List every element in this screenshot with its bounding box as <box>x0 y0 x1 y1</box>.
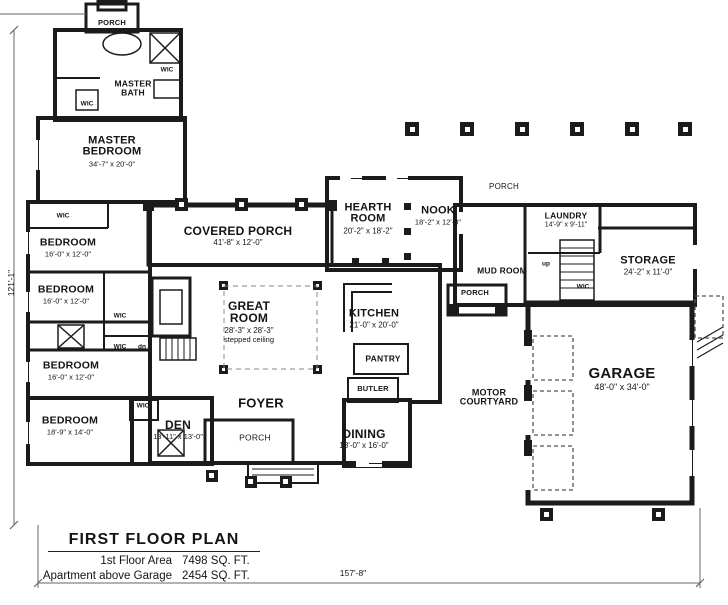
overall-width-dimension: 157'-8" <box>340 568 366 578</box>
room-label-bedroom-2: BEDROOM 16'-0" x 12'-0" <box>38 285 94 306</box>
room-label-wic-a: WIC <box>114 313 127 320</box>
room-label-den: DEN 13'-11" x 13'-0" <box>153 419 203 441</box>
area-label: Apartment above Garage <box>34 570 172 582</box>
plan-title: FIRST FLOOR PLAN <box>48 531 260 552</box>
room-label-laundry: LAUNDRY 14'-9" x 9'-11" <box>545 212 588 229</box>
area-label: 1st Floor Area <box>34 555 172 567</box>
room-label-wic-bath-east: WIC <box>161 67 174 74</box>
area-value: 7498 SQ. FT. <box>172 555 274 567</box>
room-label-dining: DINING 18'-0" x 16'-0" <box>339 428 388 450</box>
room-label-motor-courtyard: MOTOR COURTYARD <box>445 389 533 408</box>
area-row-first-floor: 1st Floor Area 7498 SQ. FT. <box>34 555 274 567</box>
room-label-foyer: FOYER <box>238 396 284 409</box>
area-value: 2454 SQ. FT. <box>172 570 274 582</box>
room-label-storage: STORAGE 24'-2" x 11'-0" <box>620 255 676 276</box>
overall-height-dimension: 121'-1" <box>6 270 16 296</box>
room-label-wic-hall: WIC <box>57 213 70 220</box>
room-label-nook: NOOK 18'-2" x 12'-0" <box>415 205 461 226</box>
floor-plan-page: PORCH MASTER BATH WIC WIC MASTER BEDROOM… <box>0 0 728 605</box>
room-label-porch-ne: PORCH <box>489 183 519 191</box>
room-label-bedroom-4: BEDROOM 18'-9" x 14'-0" <box>42 416 98 437</box>
area-row-apartment: Apartment above Garage 2454 SQ. FT. <box>34 570 274 582</box>
room-label-wic-b: WIC <box>114 344 127 351</box>
room-label-hearth-room: HEARTH ROOM 20'-2" x 18'-2" <box>337 203 399 236</box>
stair-label-dn: dn <box>138 344 146 351</box>
room-label-wic-stairs: WIC <box>577 284 590 291</box>
room-label-wic-den: WIC <box>137 403 150 410</box>
room-label-great-room: GREAT ROOM 28'-3" x 28'-3" stepped ceili… <box>221 300 277 344</box>
stair-label-up: up <box>542 261 550 268</box>
room-label-master-bedroom: MASTER BEDROOM 34'-7" x 20'-0" <box>72 136 152 169</box>
title-block: FIRST FLOOR PLAN 1st Floor Area 7498 SQ.… <box>34 531 274 582</box>
room-label-butler: BUTLER <box>357 385 389 393</box>
room-label-bedroom-1: BEDROOM 16'-0" x 12'-0" <box>40 238 96 259</box>
room-label-porch-mud: PORCH <box>461 289 489 297</box>
room-label-garage: GARAGE 48'-0" x 34'-0" <box>588 366 655 392</box>
room-label-pantry: PANTRY <box>365 355 400 364</box>
room-label-porch-nw: PORCH <box>98 19 126 27</box>
room-label-bedroom-3: BEDROOM 16'-0" x 12'-0" <box>43 361 99 382</box>
room-label-wic-bath-west: WIC <box>81 101 94 108</box>
room-label-porch-south: PORCH <box>239 434 271 443</box>
room-label-kitchen: KITCHEN 21'-0" x 20'-0" <box>349 308 399 329</box>
room-label-covered-porch: COVERED PORCH 41'-8" x 12'-0" <box>184 225 293 247</box>
room-label-mud-room: MUD ROOM <box>477 267 527 276</box>
room-label-master-bath: MASTER BATH <box>107 79 159 97</box>
